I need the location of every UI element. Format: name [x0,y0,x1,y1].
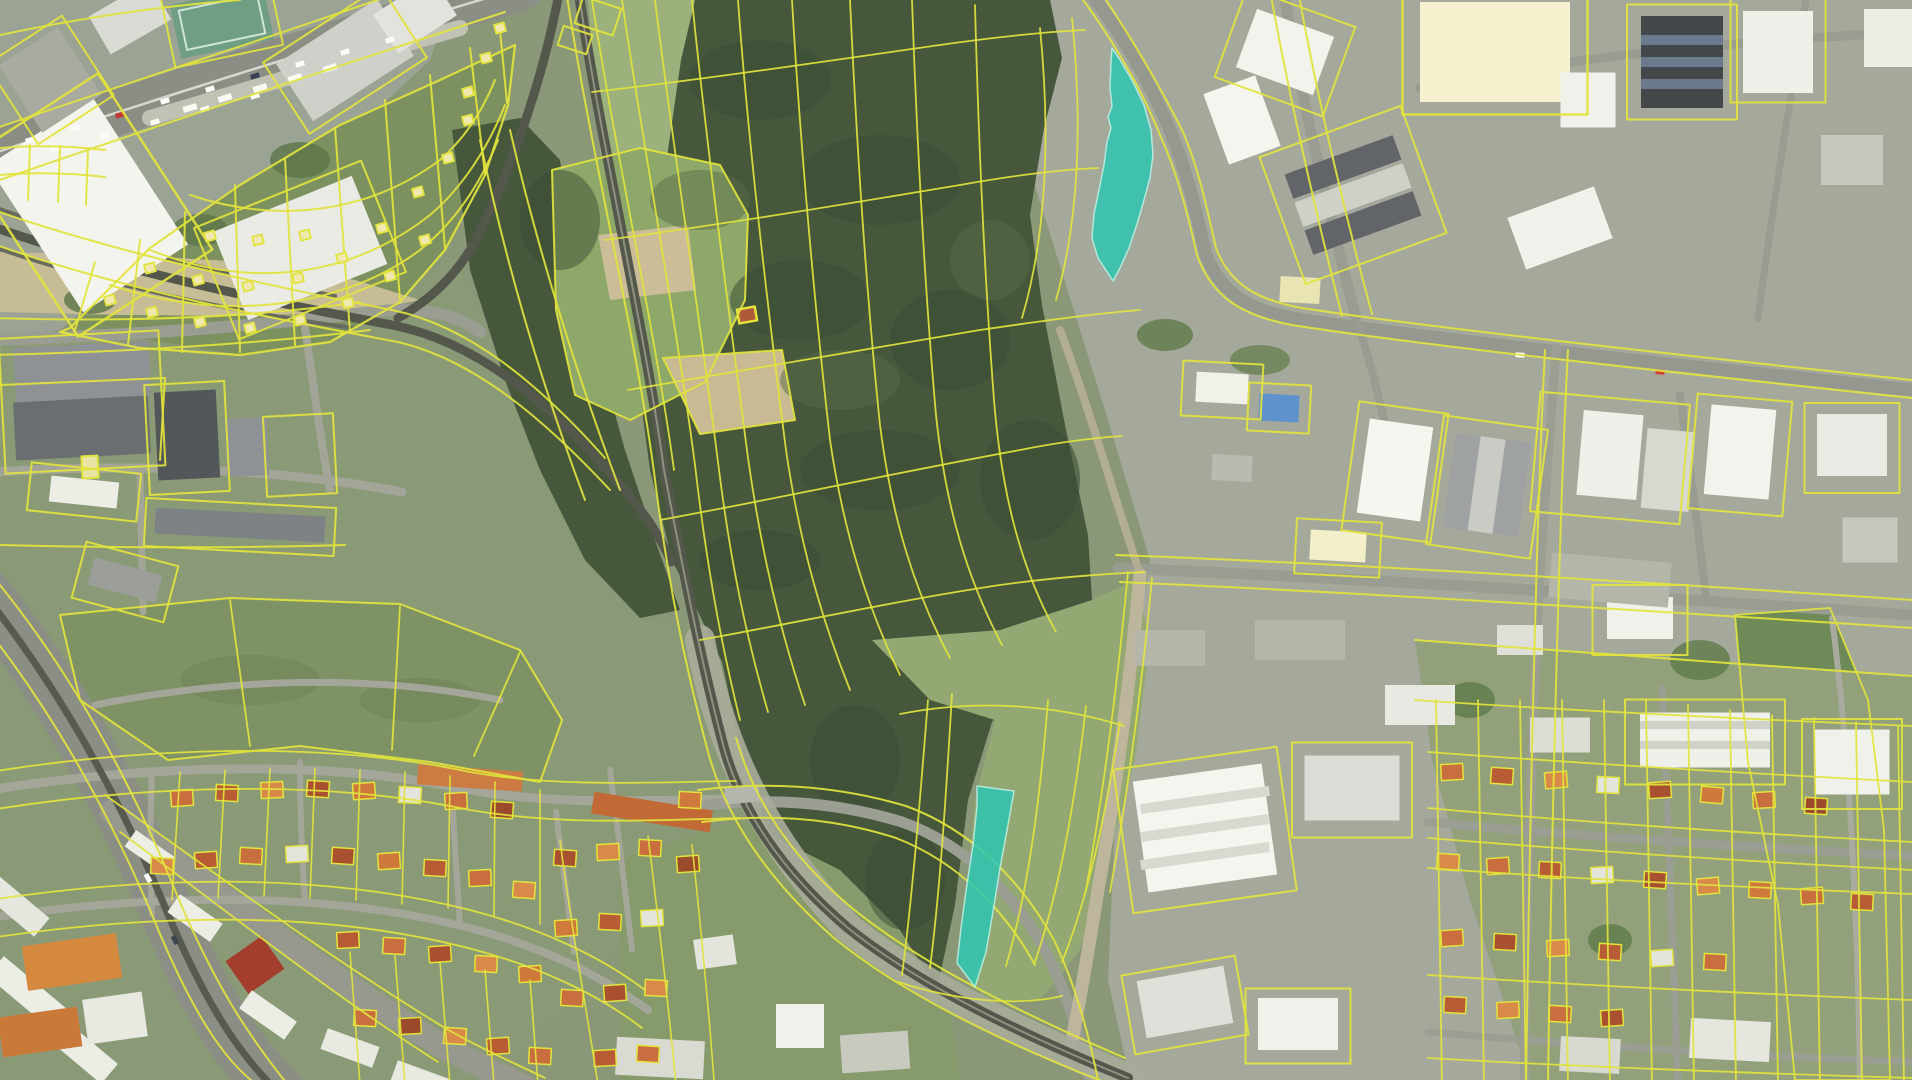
house [383,937,406,954]
garden-shed [376,222,388,233]
house [597,843,620,860]
house [603,984,626,1001]
house [424,859,447,876]
house [1548,1005,1571,1022]
house [645,979,668,996]
terrain-patch [1137,319,1193,351]
terrain-patch [730,260,870,340]
house [1700,786,1723,804]
building [1817,414,1887,476]
garden-shed [412,186,424,197]
house [1643,871,1666,888]
house [216,784,239,801]
building [1640,721,1770,729]
house [1650,949,1673,966]
garden-shed [194,316,206,327]
building [1357,419,1434,522]
building [1258,998,1338,1050]
garden-shed [480,52,492,63]
terrain-patch [800,430,960,510]
parking-lot [1255,620,1345,660]
garden-shed [462,114,474,125]
garden-shed [192,274,204,285]
house [641,909,664,926]
garden-shed [252,234,264,245]
house [1600,1009,1623,1026]
building [1530,718,1590,753]
building [1420,2,1570,102]
garden-shed [462,86,474,97]
building [1704,404,1777,499]
house [553,849,576,866]
terrain-patch [800,135,960,225]
terrain-patch [780,350,900,410]
blue-roof-building [1258,393,1299,422]
house [1591,866,1614,883]
terrain-patch [810,705,900,815]
building [615,1037,705,1080]
house [1441,763,1464,780]
rail-bridge [724,786,759,805]
house [561,989,584,1006]
building [13,396,151,461]
building [1689,1018,1771,1062]
house [306,780,329,797]
house [636,1045,659,1062]
terrain-patch [1230,345,1290,375]
house [352,782,375,799]
solar-roof [1641,79,1723,89]
solar-roof [1641,35,1723,45]
building [1497,625,1543,655]
garden-shed [294,314,306,325]
building [1211,454,1252,482]
house [1598,943,1621,960]
house [1704,953,1727,970]
garden-shed [336,252,348,263]
terrain-patch [950,220,1030,300]
garden-shed [442,152,454,163]
house [1497,1001,1520,1018]
garden-shed [292,272,304,283]
house [529,1047,552,1064]
parcel-boundary [494,782,495,916]
house [331,847,354,864]
garden-shed [419,234,431,245]
building [1309,530,1366,563]
building [1843,518,1898,563]
garden-shed [342,297,354,308]
house [286,845,309,862]
house [1444,996,1467,1013]
building [1305,756,1400,821]
house [377,852,400,869]
garden-shed [244,322,256,333]
building [1640,713,1770,768]
building [1821,135,1883,185]
building [693,934,737,969]
garden-shed [384,270,396,281]
building [1864,9,1912,67]
building [1195,372,1248,405]
building [1576,410,1643,500]
garden-shed [146,306,158,317]
house [475,955,498,972]
house [594,1049,617,1066]
garden-shed [204,230,216,241]
terrain-patch [690,40,830,120]
garden-shed [242,280,254,291]
house [1597,776,1620,793]
house [428,945,451,962]
house [1440,929,1463,946]
house [240,847,263,864]
house [676,855,699,872]
house [170,789,193,806]
building [1640,741,1770,749]
house [469,869,492,886]
map-viewport [0,0,1912,1080]
building [1385,685,1455,725]
house [399,1017,422,1034]
house [1494,933,1517,950]
garden-shed [144,262,156,273]
garden-shed [299,229,311,240]
garden-shed [494,22,506,33]
terrain-patch [598,225,696,300]
house [512,881,535,898]
house [1851,893,1874,910]
house [599,913,622,930]
building [82,992,148,1045]
house [1749,881,1772,898]
building [776,1004,824,1048]
solar-roof [1641,57,1723,67]
terrain-patch [865,830,945,930]
map-canvas[interactable] [0,0,1912,1080]
terrain-patch [270,142,330,178]
house [1490,767,1513,784]
house [337,931,360,948]
house [679,791,702,808]
garden-shed [104,294,116,305]
building [840,1031,910,1074]
building [1743,11,1813,93]
terrain-patch [980,420,1080,540]
